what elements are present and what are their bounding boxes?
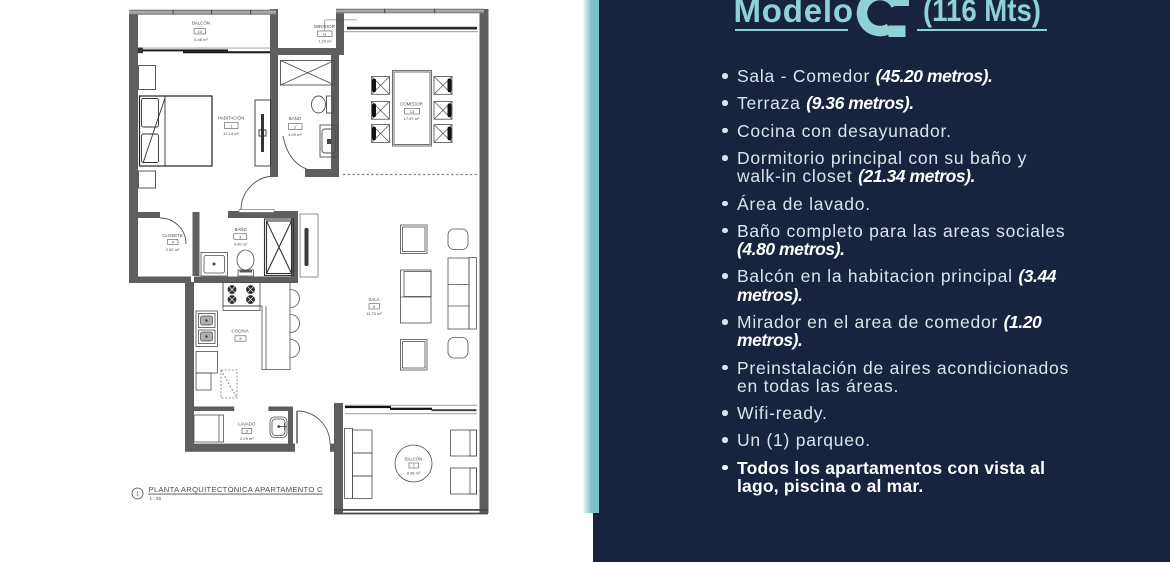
svg-text:BAÑO: BAÑO: [235, 227, 248, 232]
svg-text:11: 11: [323, 32, 328, 37]
svg-text:3.40 m²: 3.40 m²: [234, 242, 248, 247]
svg-text:10: 10: [198, 29, 203, 34]
svg-text:HABITACIÓN: HABITACIÓN: [218, 116, 245, 121]
svg-text:CLOSETE: CLOSETE: [162, 233, 183, 238]
svg-text:1: 1: [230, 123, 233, 128]
svg-text:8: 8: [239, 336, 242, 341]
svg-text:2.29 m²: 2.29 m²: [240, 436, 254, 441]
svg-text:PLANTA ARQUITECTÓNICA APARTAME: PLANTA ARQUITECTÓNICA APARTAMENTO C: [149, 485, 324, 494]
svg-text:7: 7: [413, 463, 416, 468]
svg-text:6: 6: [373, 304, 376, 309]
svg-text:BALCÓN: BALCÓN: [405, 457, 422, 462]
svg-text:1 : 25: 1 : 25: [150, 496, 162, 501]
svg-text:COCINA: COCINA: [231, 329, 248, 334]
svg-text:COMEDOR: COMEDOR: [400, 102, 423, 107]
svg-text:12.14 m²: 12.14 m²: [223, 131, 239, 136]
svg-text:2.52 m²: 2.52 m²: [166, 247, 180, 252]
svg-text:4: 4: [172, 240, 175, 245]
svg-text:13: 13: [410, 109, 415, 114]
svg-text:11.70 m²: 11.70 m²: [366, 311, 382, 316]
svg-text:MIRADOR: MIRADOR: [314, 24, 335, 29]
svg-text:BAÑO: BAÑO: [289, 116, 302, 121]
svg-text:1.29 m²: 1.29 m²: [318, 39, 332, 44]
svg-text:1: 1: [136, 492, 139, 498]
svg-text:17.97 m²: 17.97 m²: [404, 116, 420, 121]
svg-text:BALCÓN: BALCÓN: [192, 21, 210, 26]
svg-text:9.36 m²: 9.36 m²: [407, 471, 421, 476]
svg-text:4.09 m²: 4.09 m²: [288, 132, 302, 137]
svg-text:LAVADO: LAVADO: [238, 422, 256, 427]
svg-text:SALA: SALA: [368, 297, 379, 302]
svg-text:5.46 m²: 5.46 m²: [194, 37, 208, 42]
svg-text:2: 2: [294, 124, 297, 129]
svg-text:3: 3: [239, 234, 242, 239]
svg-text:9: 9: [246, 429, 249, 434]
